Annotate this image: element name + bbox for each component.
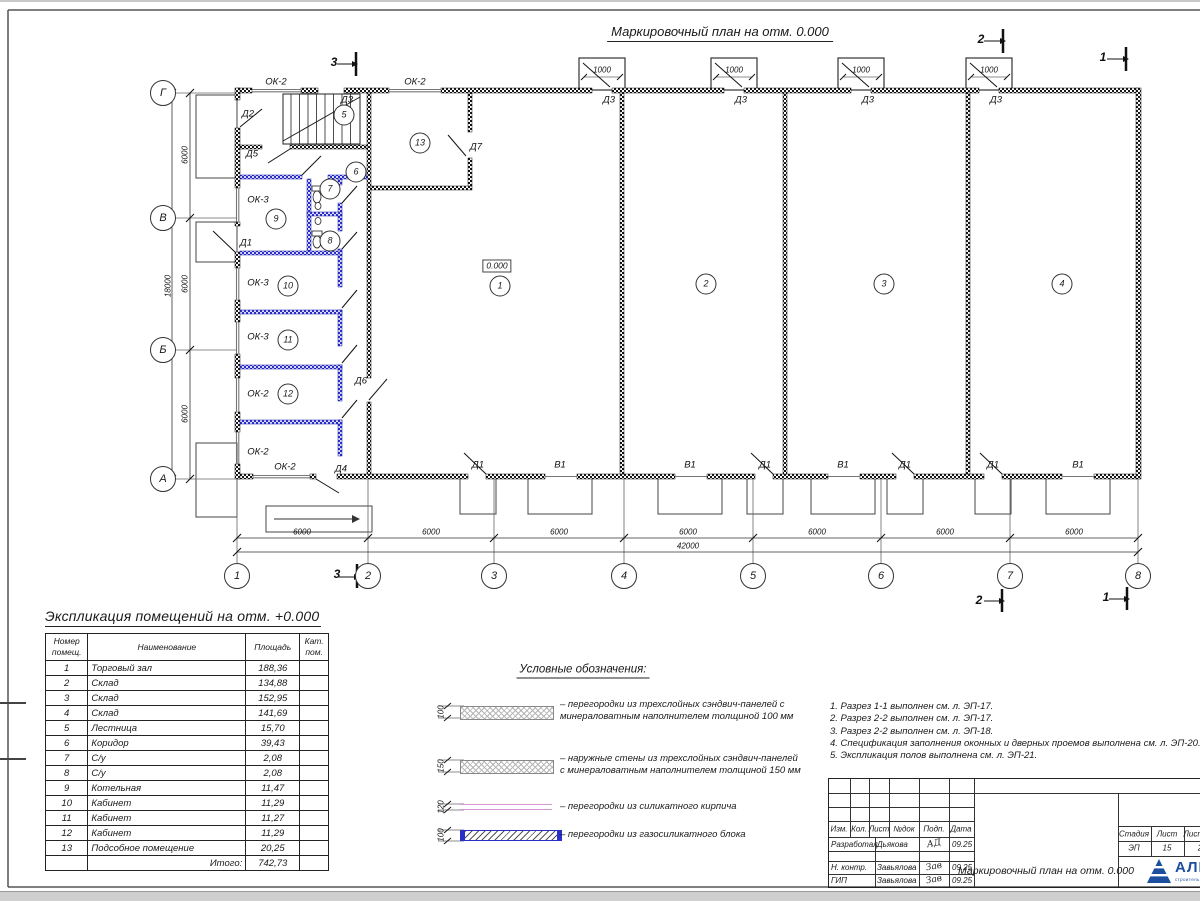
plan-label: Д1 bbox=[899, 460, 911, 471]
total-value-cell: 742,73 bbox=[246, 856, 300, 871]
tb-sheet-label: Лист bbox=[1157, 830, 1178, 839]
company-logo-icon bbox=[1147, 859, 1171, 883]
tb-name: Завьялова bbox=[877, 876, 916, 885]
room-name-cell: Подсобное помещение bbox=[88, 841, 246, 856]
explication-row: 4Склад141,69 bbox=[46, 706, 329, 721]
tb-role: ГИП bbox=[831, 876, 847, 885]
col-header-area: Площадь bbox=[246, 634, 300, 661]
room-name-cell: Кабинет bbox=[88, 811, 246, 826]
explication-row: 10Кабинет11,29 bbox=[46, 796, 329, 811]
room-number-cell: 6 bbox=[46, 736, 88, 751]
room-number-cell: 4 bbox=[46, 706, 88, 721]
legend-item-text: – перегородки из силикатного кирпича bbox=[560, 801, 805, 813]
room-number-circle: 10 bbox=[278, 276, 299, 297]
dimension-label: 1000 bbox=[852, 66, 870, 75]
room-number-circle: 9 bbox=[266, 209, 287, 230]
room-number-circle: 11 bbox=[278, 330, 299, 351]
dimension-label: 6000 bbox=[293, 528, 311, 537]
plan-label: ОК-3 bbox=[247, 278, 268, 289]
plan-label: Д3 bbox=[735, 95, 747, 106]
company-tagline: строительная компания bbox=[1175, 877, 1200, 882]
plan-label: Д1 bbox=[987, 460, 999, 471]
drawing-title: Маркировочный план на отм. 0.000 bbox=[607, 24, 833, 42]
section-mark-label: 1 bbox=[1103, 590, 1110, 604]
legend-thickness-label: 100 bbox=[437, 828, 446, 841]
plan-label: Д3 bbox=[990, 95, 1002, 106]
plan-label: ОК-3 bbox=[247, 195, 268, 206]
note-line: 3. Разрез 2-2 выполнен см. л. ЭП-18. bbox=[830, 726, 1200, 738]
explication-row: 13Подсобное помещение20,25 bbox=[46, 841, 329, 856]
notes-section: 1. Разрез 1-1 выполнен см. л. ЭП-17.2. Р… bbox=[830, 701, 1200, 762]
tb-col-podp: Подп. bbox=[923, 825, 944, 834]
room-number-cell: 3 bbox=[46, 691, 88, 706]
total-label-cell: Итого: bbox=[88, 856, 246, 871]
legend-item-text: – наружные стены из трехслойных сэндвич-… bbox=[560, 753, 805, 777]
room-area-cell: 2,08 bbox=[246, 751, 300, 766]
explication-section: Экспликация помещений на отм. +0.000 Ном… bbox=[45, 608, 329, 871]
legend-thickness-label: 120 bbox=[437, 800, 446, 813]
room-name-cell: Кабинет bbox=[88, 796, 246, 811]
plan-label: ОК-2 bbox=[274, 462, 295, 473]
legend-symbol-gas-silicate-block bbox=[460, 830, 562, 841]
total-empty-cell bbox=[46, 856, 88, 871]
tb-role: Разработал bbox=[831, 840, 878, 849]
room-number-cell: 1 bbox=[46, 661, 88, 676]
legend-symbol-sandwich-150 bbox=[460, 760, 554, 774]
room-name-cell: С/у bbox=[88, 751, 246, 766]
explication-row: 8С/у2,08 bbox=[46, 766, 329, 781]
legend-item-text: – перегородки из трехслойных сэндвич-пан… bbox=[560, 699, 805, 723]
plan-label: ОК-2 bbox=[247, 447, 268, 458]
tb-col-data: Дата bbox=[950, 825, 971, 834]
note-line: 5. Экспликация полов выполнена см. л. ЭП… bbox=[830, 750, 1200, 762]
grid-axis-row-circle: В bbox=[150, 205, 176, 231]
room-area-cell: 11,47 bbox=[246, 781, 300, 796]
tb-signature: Зав bbox=[925, 861, 943, 874]
explication-row: 12Кабинет11,29 bbox=[46, 826, 329, 841]
dimension-label: 6000 bbox=[808, 528, 826, 537]
room-number-cell: 9 bbox=[46, 781, 88, 796]
plan-label: ОК-2 bbox=[247, 389, 268, 400]
col-header-category: Кат. пом. bbox=[300, 634, 329, 661]
room-category-cell bbox=[300, 766, 329, 781]
dimension-label: 6000 bbox=[181, 146, 190, 164]
plan-label: Д2 bbox=[242, 109, 254, 120]
drawing-sheet: { "sheet": { "title": "Маркировочный пла… bbox=[0, 0, 1200, 900]
tb-doc-title: Маркировочный план на отм. 0.000 bbox=[958, 865, 1134, 877]
legend-symbol-sandwich-100 bbox=[460, 706, 554, 720]
blue-partitions bbox=[240, 175, 367, 456]
col-header-room-number: Номер помещ. bbox=[46, 634, 88, 661]
interior-walls bbox=[240, 93, 970, 474]
tb-date: 09.25 bbox=[952, 876, 972, 885]
room-name-cell: Склад bbox=[88, 676, 246, 691]
note-line: 4. Спецификация заполнения оконных и две… bbox=[830, 738, 1200, 750]
legend-symbol-silicate-brick bbox=[460, 804, 552, 810]
room-name-cell: С/у bbox=[88, 766, 246, 781]
room-number-cell: 11 bbox=[46, 811, 88, 826]
plan-label: ОК-2 bbox=[265, 77, 286, 88]
tb-col-ndok: №док bbox=[893, 825, 914, 834]
room-area-cell: 39,43 bbox=[246, 736, 300, 751]
note-line: 2. Разрез 2-2 выполнен см. л. ЭП-17. bbox=[830, 713, 1200, 725]
tb-signature: АД bbox=[926, 838, 942, 850]
room-number-circle: 6 bbox=[346, 162, 367, 183]
note-line: 1. Разрез 1-1 выполнен см. л. ЭП-17. bbox=[830, 701, 1200, 713]
vestibule-dim-ticks bbox=[581, 74, 1010, 80]
dimension-label: 18000 bbox=[164, 275, 173, 297]
room-number-circle: 5 bbox=[334, 105, 355, 126]
legend-thickness-label: 150 bbox=[437, 759, 446, 772]
explication-row: 1Торговый зал188,36 bbox=[46, 661, 329, 676]
room-number-cell: 13 bbox=[46, 841, 88, 856]
grid-axis-column-circle: 1 bbox=[224, 563, 250, 589]
grid-axis-column-circle: 8 bbox=[1125, 563, 1151, 589]
grid-axis-column-circle: 6 bbox=[868, 563, 894, 589]
plan-label: Д3 bbox=[862, 95, 874, 106]
tb-role: Н. контр. bbox=[831, 863, 867, 872]
explication-row: 11Кабинет11,27 bbox=[46, 811, 329, 826]
grid-axis-column-circle: 4 bbox=[611, 563, 637, 589]
section-mark-label: 2 bbox=[978, 32, 985, 46]
grid-lines bbox=[175, 93, 1138, 563]
room-area-cell: 11,29 bbox=[246, 796, 300, 811]
room-number-cell: 5 bbox=[46, 721, 88, 736]
room-category-cell bbox=[300, 826, 329, 841]
room-area-cell: 134,88 bbox=[246, 676, 300, 691]
col-header-name: Наименование bbox=[88, 634, 246, 661]
room-area-cell: 141,69 bbox=[246, 706, 300, 721]
tb-col-kol: Кол. bbox=[851, 825, 867, 834]
room-name-cell: Склад bbox=[88, 691, 246, 706]
room-category-cell bbox=[300, 706, 329, 721]
dimension-lines bbox=[172, 93, 1138, 552]
room-category-cell bbox=[300, 781, 329, 796]
room-number-circle: 4 bbox=[1052, 274, 1073, 295]
room-number-circle: 13 bbox=[410, 133, 431, 154]
plan-label: В1 bbox=[684, 460, 696, 471]
total-category-cell bbox=[300, 856, 329, 871]
grid-axis-row-circle: Г bbox=[150, 80, 176, 106]
grid-axis-row-circle: А bbox=[150, 466, 176, 492]
room-name-cell: Котельная bbox=[88, 781, 246, 796]
plan-label: Д1 bbox=[759, 460, 771, 471]
room-area-cell: 11,29 bbox=[246, 826, 300, 841]
ramp-arrow bbox=[274, 515, 360, 523]
plan-label: В1 bbox=[554, 460, 566, 471]
explication-row: 7С/у2,08 bbox=[46, 751, 329, 766]
room-area-cell: 2,08 bbox=[246, 766, 300, 781]
dimension-label: 6000 bbox=[181, 275, 190, 293]
room-area-cell: 188,36 bbox=[246, 661, 300, 676]
tb-col-izm: Изм. bbox=[830, 825, 847, 834]
tb-date: 09.25 bbox=[952, 840, 972, 849]
room-number-circle: 2 bbox=[696, 274, 717, 295]
entrance-vestibules bbox=[579, 58, 1012, 90]
room-category-cell bbox=[300, 691, 329, 706]
room-name-cell: Склад bbox=[88, 706, 246, 721]
room-area-cell: 20,25 bbox=[246, 841, 300, 856]
explication-total-row: Итого:742,73 bbox=[46, 856, 329, 871]
title-block: Изм. Кол. Лист №док Подп. Дата Разработа… bbox=[828, 778, 1200, 888]
room-name-cell: Коридор bbox=[88, 736, 246, 751]
dimension-label: 42000 bbox=[677, 542, 699, 551]
elevation-mark: 0.000 bbox=[482, 260, 511, 273]
legend-title: Условные обозначения: bbox=[517, 664, 650, 679]
plan-label: Д3 bbox=[603, 95, 615, 106]
grid-axis-column-circle: 5 bbox=[740, 563, 766, 589]
plan-label: Д1 bbox=[472, 460, 484, 471]
explication-title: Экспликация помещений на отм. +0.000 bbox=[45, 608, 321, 627]
legend-item-text: – перегородки из газосиликатного блока bbox=[560, 829, 805, 841]
room-category-cell bbox=[300, 721, 329, 736]
tb-stage-label: Стадия bbox=[1119, 830, 1149, 839]
grid-axis-row-circle: Б bbox=[150, 337, 176, 363]
dimension-ticks bbox=[168, 89, 1142, 556]
section-mark-label: 3 bbox=[334, 567, 341, 581]
tb-col-list: Лист bbox=[869, 825, 890, 834]
plan-label: В1 bbox=[837, 460, 849, 471]
legend-thickness-label: 100 bbox=[437, 705, 446, 718]
dimension-label: 1000 bbox=[725, 66, 743, 75]
tb-signature: Зав bbox=[925, 874, 943, 887]
plan-label: Д6 bbox=[355, 376, 367, 387]
tb-stage-value: ЭП bbox=[1128, 844, 1139, 853]
room-category-cell bbox=[300, 736, 329, 751]
room-area-cell: 15,70 bbox=[246, 721, 300, 736]
section-mark-label: 3 bbox=[331, 55, 338, 69]
room-category-cell bbox=[300, 841, 329, 856]
dimension-label: 6000 bbox=[1065, 528, 1083, 537]
section-mark-label: 2 bbox=[976, 593, 983, 607]
grid-axis-column-circle: 2 bbox=[355, 563, 381, 589]
explication-row: 6Коридор39,43 bbox=[46, 736, 329, 751]
room-name-cell: Торговый зал bbox=[88, 661, 246, 676]
plan-label: Д5 bbox=[246, 149, 258, 160]
room-number-cell: 12 bbox=[46, 826, 88, 841]
grid-axis-column-circle: 7 bbox=[997, 563, 1023, 589]
room-name-cell: Кабинет bbox=[88, 826, 246, 841]
dimension-label: 6000 bbox=[422, 528, 440, 537]
plan-label: Д7 bbox=[470, 142, 482, 153]
room-number-circle: 1 bbox=[490, 276, 511, 297]
plan-label: ОК-2 bbox=[404, 77, 425, 88]
room-number-cell: 8 bbox=[46, 766, 88, 781]
grid-axis-column-circle: 3 bbox=[481, 563, 507, 589]
room-category-cell bbox=[300, 676, 329, 691]
section-marks bbox=[337, 29, 1130, 612]
room-number-circle: 12 bbox=[278, 384, 299, 405]
plan-label: ОК-3 bbox=[247, 332, 268, 343]
fold-marks bbox=[0, 703, 26, 759]
dimension-label: 6000 bbox=[679, 528, 697, 537]
loading-docks bbox=[460, 479, 1110, 514]
dimension-label: 6000 bbox=[936, 528, 954, 537]
room-number-cell: 7 bbox=[46, 751, 88, 766]
room-number-circle: 3 bbox=[874, 274, 895, 295]
plan-label: В1 bbox=[1072, 460, 1084, 471]
room-area-cell: 152,95 bbox=[246, 691, 300, 706]
room-category-cell bbox=[300, 661, 329, 676]
explication-table: Номер помещ. Наименование Площадь Кат. п… bbox=[45, 633, 329, 871]
room-category-cell bbox=[300, 811, 329, 826]
dimension-label: 1000 bbox=[593, 66, 611, 75]
room-category-cell bbox=[300, 796, 329, 811]
dimension-label: 6000 bbox=[181, 405, 190, 423]
plan-label: Д4 bbox=[335, 464, 347, 475]
explication-row: 9Котельная11,47 bbox=[46, 781, 329, 796]
explication-row: 5Лестница15,70 bbox=[46, 721, 329, 736]
explication-row: 3Склад152,95 bbox=[46, 691, 329, 706]
room-number-circle: 7 bbox=[320, 179, 341, 200]
room-name-cell: Лестница bbox=[88, 721, 246, 736]
company-name: АЛЬЯНС bbox=[1175, 859, 1200, 876]
tb-sheets-label: Листов bbox=[1183, 830, 1200, 839]
room-number-circle: 8 bbox=[320, 231, 341, 252]
tb-sheet-value: 15 bbox=[1163, 844, 1172, 853]
tb-name: Дьякова bbox=[877, 840, 908, 849]
dimension-label: 1000 bbox=[980, 66, 998, 75]
room-number-cell: 10 bbox=[46, 796, 88, 811]
tb-name: Завьялова bbox=[877, 863, 916, 872]
plan-label: Д1 bbox=[240, 238, 252, 249]
explication-row: 2Склад134,88 bbox=[46, 676, 329, 691]
section-mark-label: 1 bbox=[1100, 50, 1107, 64]
room-number-cell: 2 bbox=[46, 676, 88, 691]
dimension-label: 6000 bbox=[550, 528, 568, 537]
room-area-cell: 11,27 bbox=[246, 811, 300, 826]
room-category-cell bbox=[300, 751, 329, 766]
